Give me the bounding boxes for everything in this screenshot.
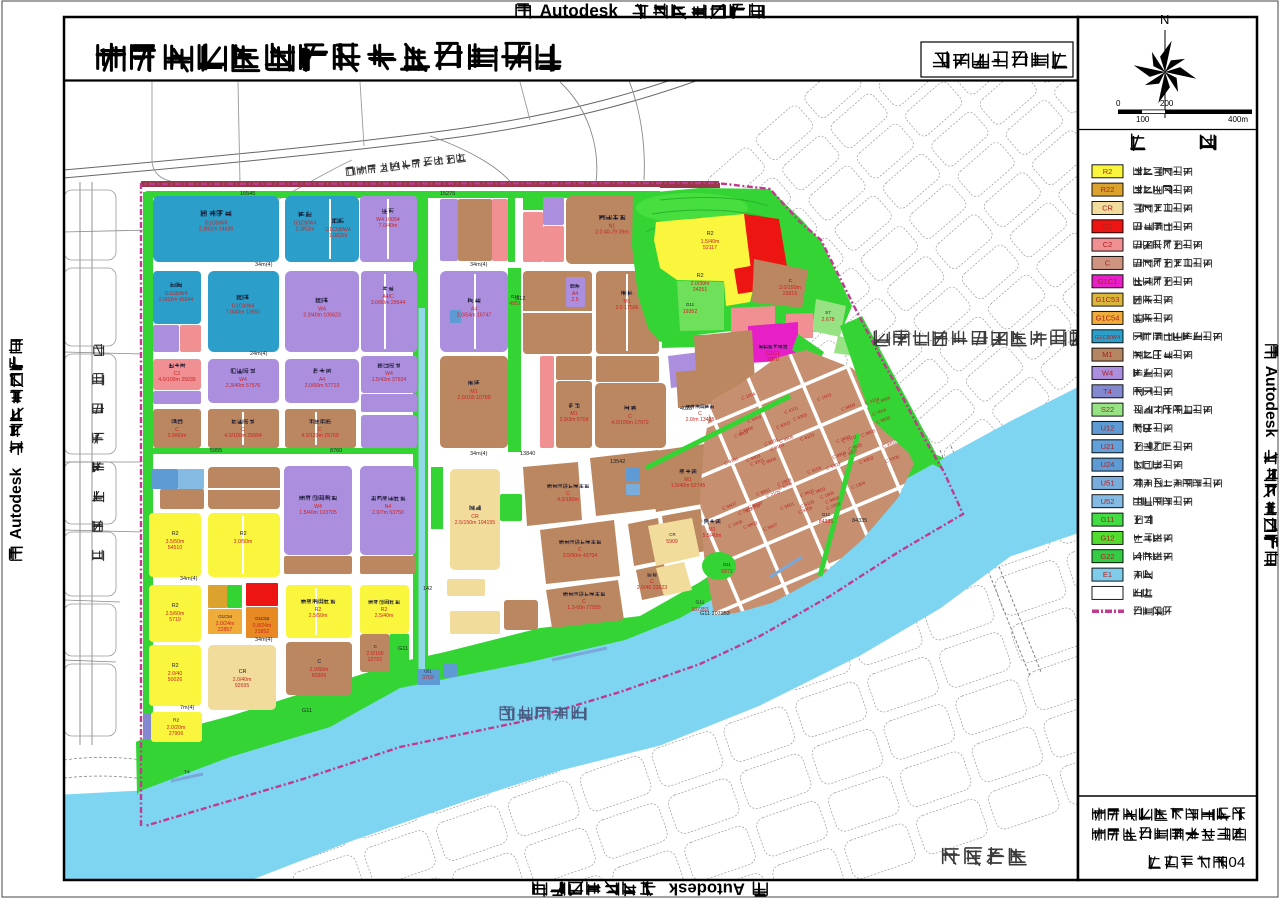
svg-text:R2: R2 bbox=[707, 231, 714, 237]
svg-text:84335: 84335 bbox=[819, 519, 834, 525]
svg-text:G11 107353: G11 107353 bbox=[700, 611, 730, 617]
svg-text:2.0 40-79 39m: 2.0 40-79 39m bbox=[595, 230, 628, 236]
svg-text:1.5/42m 37924: 1.5/42m 37924 bbox=[372, 377, 407, 383]
svg-text:5909: 5909 bbox=[666, 539, 678, 545]
svg-text:2.0/60m: 2.0/60m bbox=[168, 433, 187, 439]
svg-text:60306: 60306 bbox=[312, 673, 327, 679]
svg-text:5971: 5971 bbox=[721, 569, 733, 575]
svg-text:16545: 16545 bbox=[240, 191, 255, 197]
svg-text:200: 200 bbox=[1160, 99, 1174, 108]
svg-text:7m(4): 7m(4) bbox=[180, 705, 195, 711]
svg-text:2.3/40m 57576: 2.3/40m 57576 bbox=[226, 383, 261, 389]
svg-text:34m(4): 34m(4) bbox=[470, 262, 488, 268]
svg-text:2.678: 2.678 bbox=[822, 317, 835, 323]
svg-text:21852: 21852 bbox=[255, 629, 270, 635]
svg-text:4.0/100m 17972: 4.0/100m 17972 bbox=[611, 420, 649, 426]
svg-text:22751: 22751 bbox=[368, 657, 383, 663]
svg-text:U21: U21 bbox=[1101, 442, 1115, 451]
svg-text:C: C bbox=[1105, 259, 1111, 268]
svg-text:Autodesk: Autodesk bbox=[668, 880, 745, 898]
svg-text:27906: 27906 bbox=[169, 731, 184, 737]
svg-text:34m(4): 34m(4) bbox=[255, 262, 273, 268]
svg-text:54510: 54510 bbox=[168, 545, 183, 551]
svg-text:R2: R2 bbox=[1103, 167, 1113, 176]
svg-text:N: N bbox=[1160, 12, 1169, 27]
svg-text:5.5/40m: 5.5/40m bbox=[703, 533, 722, 539]
svg-text:CR: CR bbox=[1102, 204, 1113, 213]
svg-text:G11: G11 bbox=[723, 562, 732, 567]
svg-text:7.0/40m 10650: 7.0/40m 10650 bbox=[226, 310, 261, 316]
svg-text:4.0/180m: 4.0/180m bbox=[557, 497, 579, 503]
svg-text:G1C54: G1C54 bbox=[1096, 314, 1120, 323]
svg-text:R2: R2 bbox=[240, 531, 247, 537]
svg-text:7.0/40m: 7.0/40m bbox=[379, 223, 398, 229]
svg-text:3.0/60m 29544: 3.0/60m 29544 bbox=[371, 300, 406, 306]
svg-text:G11: G11 bbox=[696, 600, 705, 606]
svg-text:100: 100 bbox=[1136, 115, 1150, 124]
svg-text:G1C53: G1C53 bbox=[255, 616, 269, 621]
svg-text:04: 04 bbox=[1228, 854, 1245, 871]
svg-text:4951: 4951 bbox=[509, 301, 521, 307]
svg-text:U51: U51 bbox=[424, 668, 432, 673]
svg-text:M1: M1 bbox=[1102, 350, 1112, 359]
svg-text:G1C8/W4: G1C8/W4 bbox=[1095, 335, 1121, 341]
svg-text:W4: W4 bbox=[1102, 369, 1113, 378]
svg-text:G22: G22 bbox=[1100, 552, 1114, 561]
svg-text:15275: 15275 bbox=[440, 191, 455, 197]
svg-text:19352: 19352 bbox=[683, 309, 698, 315]
svg-text:2.3/52m 14635: 2.3/52m 14635 bbox=[199, 227, 234, 233]
svg-text:2.0/60m 57713: 2.0/60m 57713 bbox=[305, 383, 340, 389]
svg-text:142: 142 bbox=[423, 586, 432, 592]
svg-text:U12: U12 bbox=[1101, 424, 1115, 433]
svg-text:2.0/52m 45944: 2.0/52m 45944 bbox=[159, 297, 194, 303]
svg-text:4.0/100m 25035: 4.0/100m 25035 bbox=[158, 377, 196, 383]
svg-text:2.0/3m 570d: 2.0/3m 570d bbox=[560, 417, 589, 423]
svg-text:U51: U51 bbox=[1101, 479, 1115, 488]
svg-text:2.5: 2.5 bbox=[571, 297, 578, 303]
svg-text:1.5/40m 103705: 1.5/40m 103705 bbox=[299, 510, 337, 516]
svg-text:34m(4): 34m(4) bbox=[255, 637, 273, 643]
svg-text:R2: R2 bbox=[172, 531, 179, 537]
svg-text:R2: R2 bbox=[172, 603, 179, 609]
svg-text:4028: 4028 bbox=[680, 406, 692, 412]
svg-text:84335: 84335 bbox=[852, 518, 867, 524]
svg-text:E1: E1 bbox=[1103, 570, 1112, 579]
svg-text:24251: 24251 bbox=[693, 287, 708, 293]
svg-text:0: 0 bbox=[1116, 99, 1121, 108]
svg-text:C2: C2 bbox=[1103, 240, 1113, 249]
svg-text:4.0/100m 25994: 4.0/100m 25994 bbox=[224, 433, 262, 439]
svg-text:CR: CR bbox=[239, 669, 247, 675]
svg-text:G11: G11 bbox=[822, 512, 831, 517]
svg-text:2.0/7m 53750: 2.0/7m 53750 bbox=[372, 510, 404, 516]
svg-text:1.0/52m: 1.0/52m bbox=[329, 233, 348, 239]
svg-text:34m(4): 34m(4) bbox=[180, 576, 198, 582]
svg-text:23915: 23915 bbox=[783, 291, 798, 297]
svg-text:CR: CR bbox=[669, 532, 675, 537]
svg-text:1.3-60n 77555: 1.3-60n 77555 bbox=[567, 605, 601, 611]
svg-text:5955: 5955 bbox=[210, 448, 222, 454]
svg-text:G11: G11 bbox=[686, 302, 695, 307]
svg-text:2.0/105 10799: 2.0/105 10799 bbox=[457, 395, 490, 401]
svg-text:R2: R2 bbox=[173, 718, 180, 724]
svg-text:2.5/150m 104155: 2.5/150m 104155 bbox=[455, 520, 495, 526]
svg-text:2.3/52m: 2.3/52m bbox=[296, 227, 315, 233]
svg-text:C1: C1 bbox=[1103, 222, 1113, 231]
svg-text:3.5/90m 43704: 3.5/90m 43704 bbox=[563, 553, 598, 559]
svg-text:8760: 8760 bbox=[330, 448, 342, 454]
svg-text:T4: T4 bbox=[184, 770, 190, 776]
svg-text:G1C54: G1C54 bbox=[218, 614, 232, 619]
svg-text:S7: S7 bbox=[825, 310, 831, 315]
svg-text:Autodesk: Autodesk bbox=[8, 468, 25, 540]
svg-text:R2: R2 bbox=[697, 273, 704, 279]
svg-text:92695: 92695 bbox=[235, 683, 250, 689]
svg-text:T4: T4 bbox=[1103, 387, 1112, 396]
svg-text:Autodesk: Autodesk bbox=[540, 1, 619, 21]
svg-text:G12: G12 bbox=[515, 296, 525, 302]
svg-text:52117: 52117 bbox=[703, 245, 717, 251]
svg-text:13542: 13542 bbox=[610, 459, 625, 465]
svg-text:U52: U52 bbox=[1101, 497, 1115, 506]
svg-text:400m: 400m bbox=[1228, 115, 1248, 124]
svg-text:24m(4): 24m(4) bbox=[250, 351, 268, 357]
svg-text:R2: R2 bbox=[172, 663, 179, 669]
svg-text:13840: 13840 bbox=[520, 451, 535, 457]
svg-text:2.0 17506: 2.0 17506 bbox=[615, 305, 638, 311]
svg-text:2.0/54m 16747: 2.0/54m 16747 bbox=[457, 313, 492, 319]
svg-text:G12: G12 bbox=[1100, 534, 1114, 543]
svg-text:G1C1: G1C1 bbox=[1098, 277, 1118, 286]
svg-text:2.3/40m 105623: 2.3/40m 105623 bbox=[303, 313, 341, 319]
svg-text:3.0/50m: 3.0/50m bbox=[234, 539, 253, 545]
svg-text:C: C bbox=[317, 659, 321, 665]
svg-text:G11: G11 bbox=[398, 646, 408, 652]
svg-text:2.0/m 13425: 2.0/m 13425 bbox=[686, 417, 715, 423]
svg-text:R22: R22 bbox=[1101, 185, 1115, 194]
svg-text:G1C53: G1C53 bbox=[1096, 295, 1120, 304]
svg-text:2.5/50m: 2.5/50m bbox=[309, 613, 328, 619]
svg-text:4.0/120m 25769: 4.0/120m 25769 bbox=[301, 433, 339, 439]
svg-text:U24: U24 bbox=[1101, 460, 1115, 469]
svg-text:Autodesk: Autodesk bbox=[1262, 366, 1279, 438]
svg-text:50026: 50026 bbox=[168, 677, 183, 683]
svg-text:S22: S22 bbox=[1101, 405, 1114, 414]
svg-text:9970: 9970 bbox=[767, 357, 779, 363]
svg-text:G11: G11 bbox=[302, 708, 312, 714]
svg-text:2.5/40m: 2.5/40m bbox=[375, 613, 394, 619]
svg-text:22857: 22857 bbox=[218, 627, 233, 633]
svg-text:1.5/40m 52745: 1.5/40m 52745 bbox=[671, 483, 706, 489]
svg-text:2.0/40 23923: 2.0/40 23923 bbox=[637, 585, 667, 591]
svg-text:34m(4): 34m(4) bbox=[470, 451, 488, 457]
svg-text:5719: 5719 bbox=[169, 617, 181, 623]
svg-text:3702: 3702 bbox=[422, 675, 434, 681]
svg-text:G11: G11 bbox=[1101, 515, 1115, 524]
